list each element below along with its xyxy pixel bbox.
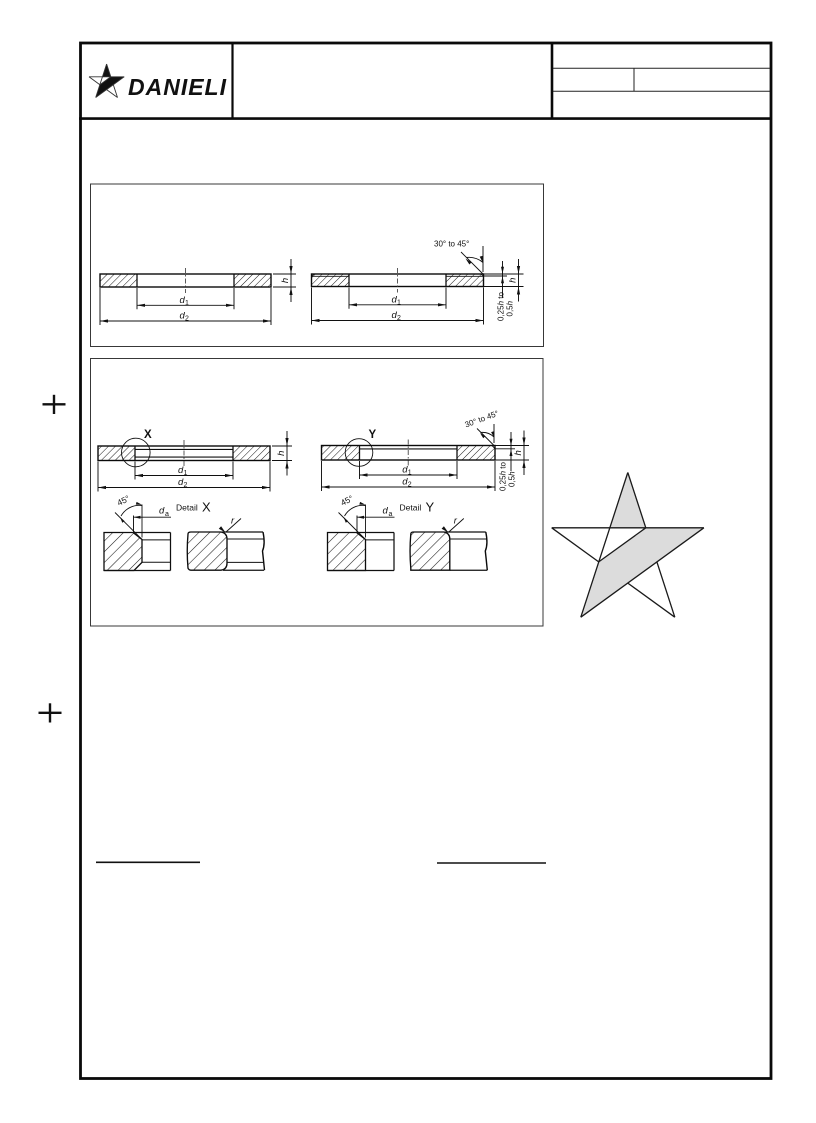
svg-text:Detail: Detail: [400, 503, 422, 513]
svg-text:Detail: Detail: [176, 503, 198, 513]
svg-text:30° to 45°: 30° to 45°: [434, 240, 469, 249]
svg-text:2: 2: [408, 482, 412, 489]
svg-text:a: a: [165, 511, 169, 518]
svg-text:Y: Y: [369, 429, 377, 441]
svg-text:2: 2: [397, 315, 401, 322]
svg-text:0,25h to: 0,25h to: [497, 292, 506, 321]
svg-text:h: h: [513, 450, 524, 455]
svg-text:1: 1: [184, 470, 188, 477]
svg-text:1: 1: [397, 299, 401, 306]
svg-text:2: 2: [184, 482, 188, 489]
svg-text:DANIELI: DANIELI: [128, 74, 227, 100]
svg-text:X: X: [144, 429, 152, 441]
svg-text:1: 1: [408, 470, 412, 477]
svg-text:h: h: [276, 451, 287, 456]
svg-text:0,25h to: 0,25h to: [499, 462, 508, 491]
svg-text:h: h: [508, 278, 519, 283]
svg-text:2: 2: [185, 316, 189, 323]
svg-text:1: 1: [185, 300, 189, 307]
svg-text:X: X: [202, 500, 211, 515]
svg-text:0,5h: 0,5h: [506, 300, 515, 316]
svg-text:a: a: [389, 511, 393, 518]
svg-text:h: h: [280, 278, 291, 283]
svg-text:Y: Y: [426, 500, 435, 515]
svg-text:0,5h: 0,5h: [508, 471, 517, 487]
